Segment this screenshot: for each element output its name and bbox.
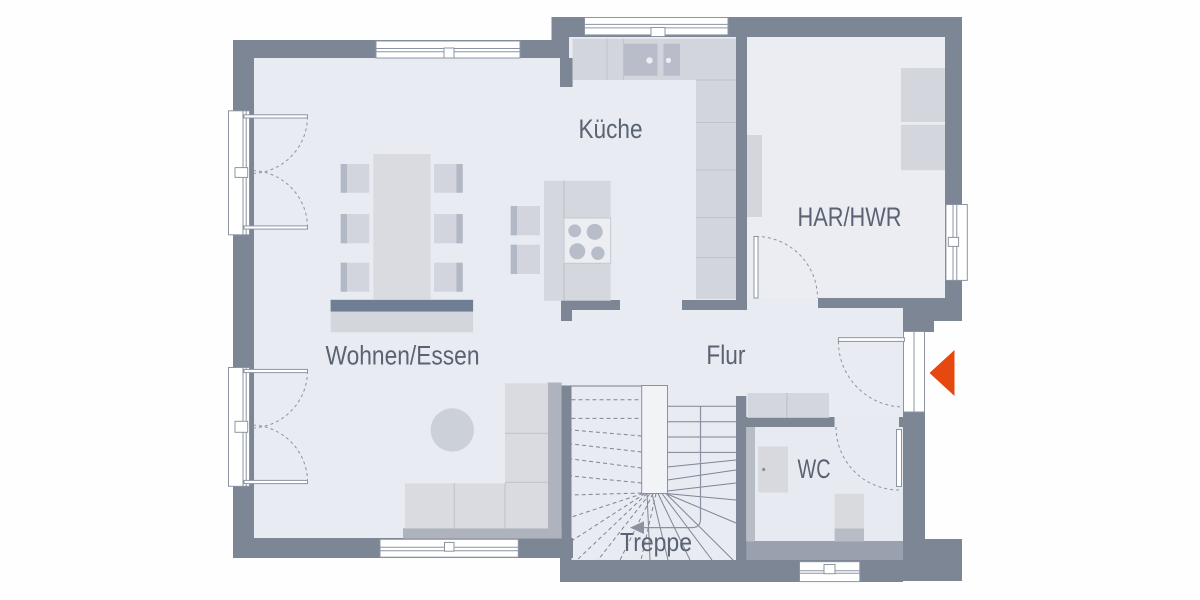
svg-text:Flur: Flur [706,340,745,370]
svg-text:Küche: Küche [579,114,643,144]
svg-text:Wohnen/Essen: Wohnen/Essen [326,341,480,371]
svg-text:HAR/HWR: HAR/HWR [798,202,902,232]
svg-text:WC: WC [798,454,831,484]
svg-text:Treppe: Treppe [620,527,692,557]
